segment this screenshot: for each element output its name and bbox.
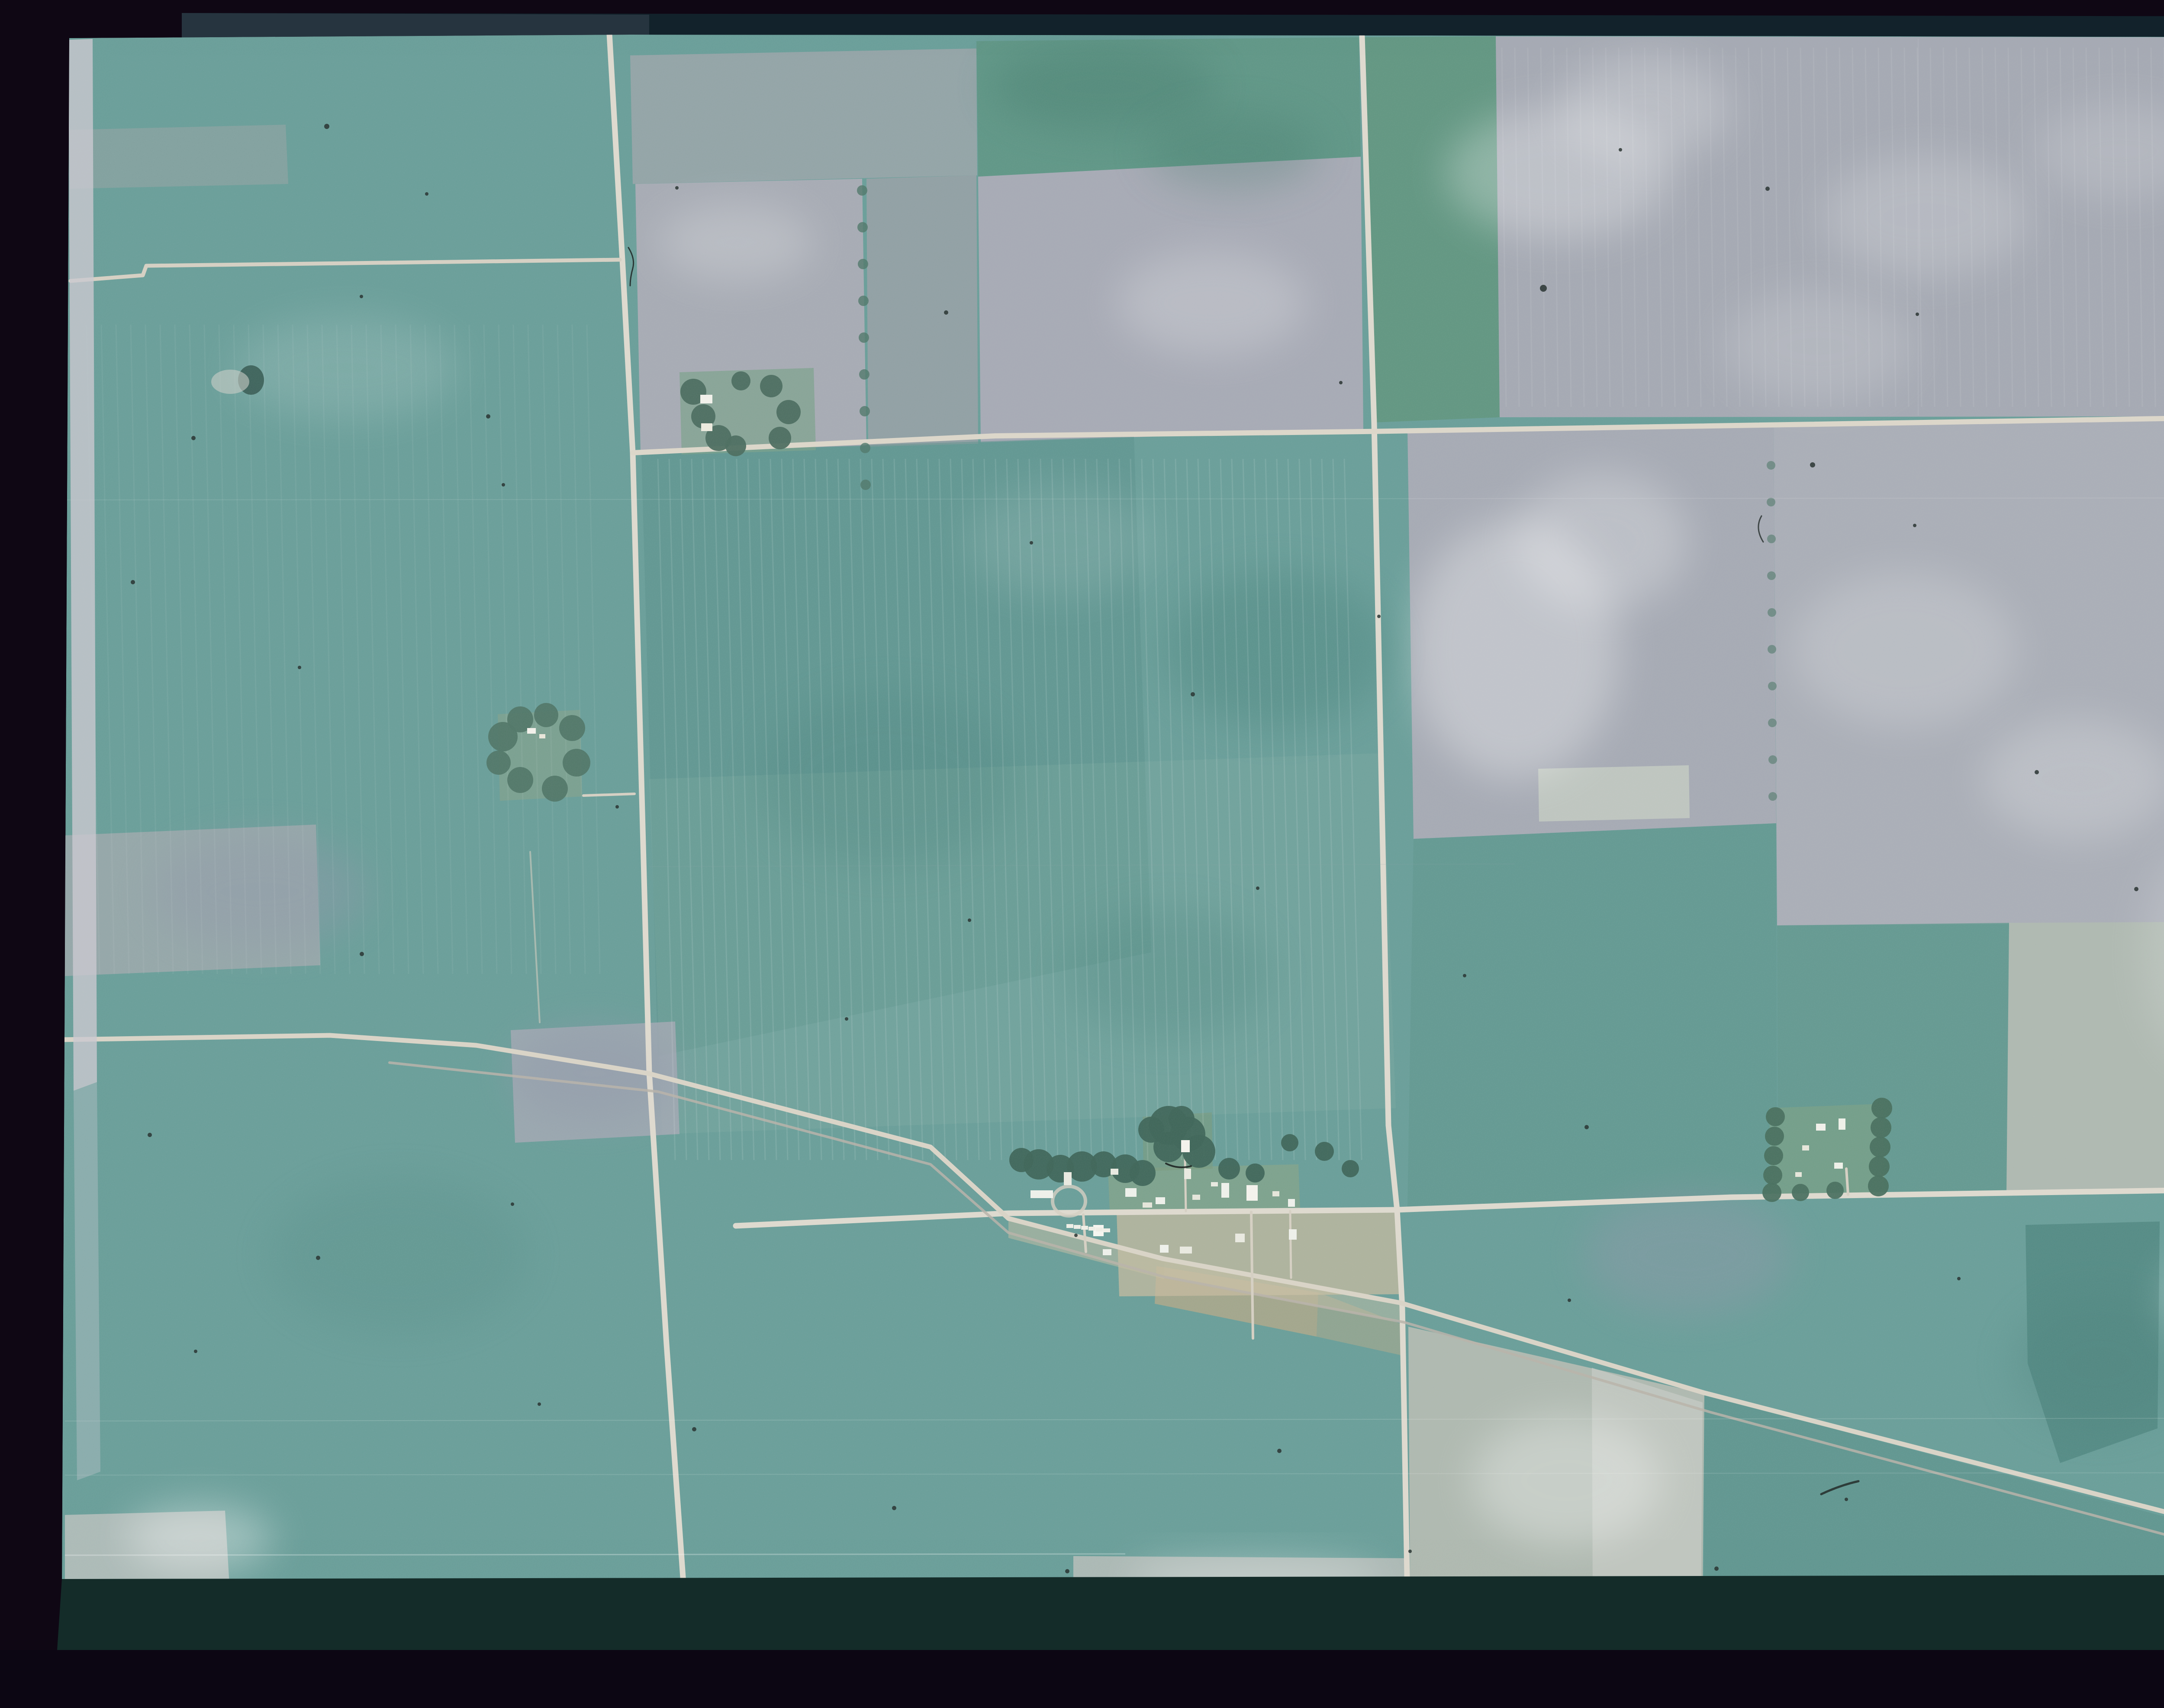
slide-scan <box>0 0 2164 1708</box>
mount-shadow-bands <box>0 1575 2164 1708</box>
film-grain <box>0 0 2164 1708</box>
aerial-photo-canvas <box>0 0 2164 1708</box>
mount-shadow-bands-item <box>56 1575 2164 1663</box>
photo-area <box>0 0 2164 1708</box>
mount-shadow-bands-item <box>0 1650 2164 1708</box>
